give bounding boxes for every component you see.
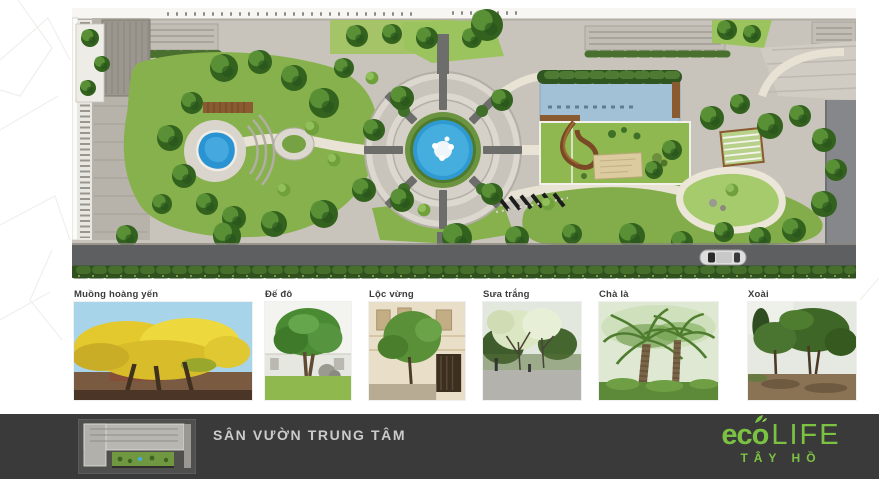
photo-label: Muồng hoàng yến	[74, 287, 252, 302]
photo-label: Xoài	[748, 287, 856, 302]
photo-cha-la-image	[599, 302, 718, 400]
plan-thumbnail	[78, 419, 196, 474]
photo-label: Sưa trắng	[483, 287, 581, 302]
photo-card: Muồng hoàng yến	[74, 287, 252, 400]
section-title: SÂN VƯỜN TRUNG TÂM	[213, 427, 406, 443]
footer-bar: SÂN VƯỜN TRUNG TÂM ecoLIFE TÂY HỒ	[0, 414, 879, 479]
photo-label: Đế đô	[265, 287, 351, 302]
plan-road	[72, 244, 856, 276]
photo-loc-vung-image	[369, 302, 465, 400]
logo-subtitle: TÂY HỒ	[701, 451, 861, 465]
photo-sua-trang-image	[483, 302, 581, 400]
slide: Muồng hoàng yến Đế đô Lộc vừng	[0, 0, 879, 479]
photo-card: Đế đô	[265, 287, 351, 400]
photo-card: Lộc vừng	[369, 287, 465, 400]
photo-label: Chà là	[599, 287, 718, 302]
masterplan-image	[72, 8, 856, 285]
ecolife-logo: ecoLIFE TÂY HỒ	[701, 420, 861, 465]
photo-card: Xoài	[748, 287, 856, 400]
ecolife-logo-wordmark: ecoLIFE	[701, 420, 861, 450]
photo-muong-hoang-yen-image	[74, 302, 252, 400]
photo-xoai-image	[748, 302, 856, 400]
photo-card: Chà là	[599, 287, 718, 400]
plan-hedge-row	[75, 270, 854, 276]
photo-label: Lộc vừng	[369, 287, 465, 302]
leaf-icon	[754, 414, 768, 424]
photo-de-do-image	[265, 302, 351, 400]
plan-pool	[540, 75, 680, 123]
photo-card: Sưa trắng	[483, 287, 581, 400]
